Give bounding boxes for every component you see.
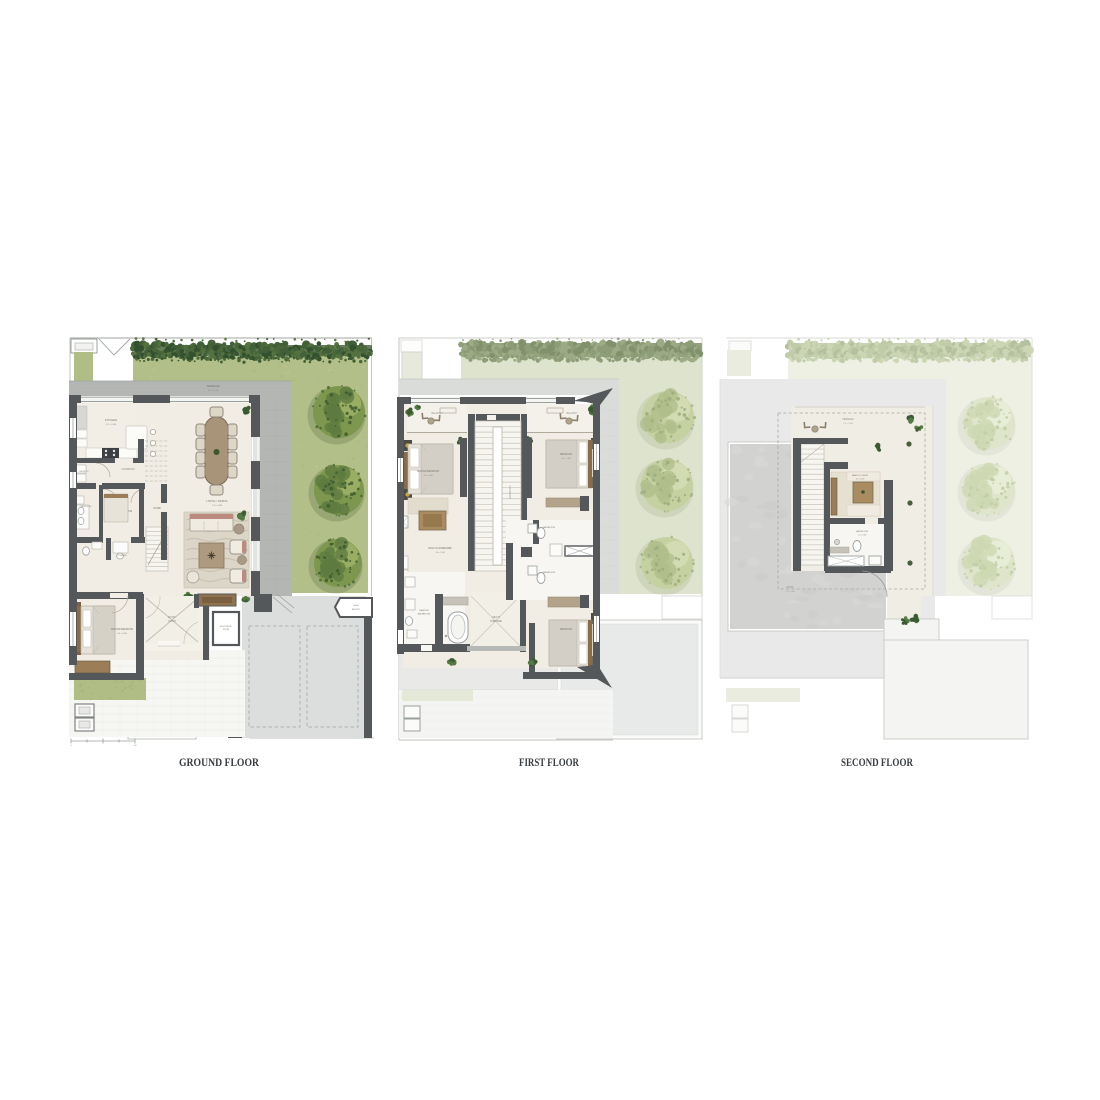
svg-text:MULTI: MULTI — [493, 616, 500, 619]
svg-text:7.9 x 4.6M: 7.9 x 4.6M — [212, 505, 222, 507]
svg-text:4.2 x 3.0M: 4.2 x 3.0M — [106, 424, 116, 426]
svg-text:KITCHEN: KITCHEN — [105, 418, 117, 422]
svg-text:4.6 x 4.0M: 4.6 x 4.0M — [423, 475, 433, 477]
svg-text:7.3 x 6.4M: 7.3 x 6.4M — [785, 591, 795, 593]
svg-text:6.4 x 2.1M: 6.4 x 2.1M — [208, 390, 218, 392]
svg-text:ENTRY: ENTRY — [168, 617, 176, 619]
svg-text:BUGGY: BUGGY — [352, 609, 360, 611]
svg-text:4.6 x 3.6M: 4.6 x 3.6M — [117, 633, 127, 635]
svg-text:3.4 x 3.0M: 3.4 x 3.0M — [856, 479, 865, 481]
svg-text:ROOM: ROOM — [223, 629, 229, 631]
svg-text:5M: 5M — [134, 745, 137, 747]
svg-text:PURPOSE: PURPOSE — [490, 620, 502, 623]
svg-text:BATHROOM: BATHROOM — [856, 530, 868, 533]
svg-text:BALCONY: BALCONY — [567, 412, 578, 415]
svg-text:BEDROOM: BEDROOM — [560, 629, 572, 631]
svg-text:BALCONY: BALCONY — [432, 412, 443, 415]
svg-text:POWDER: POWDER — [117, 555, 127, 557]
svg-text:3.4 x 1.9M: 3.4 x 1.9M — [435, 552, 445, 554]
svg-text:6.1 x 2.0M: 6.1 x 2.0M — [843, 423, 853, 425]
svg-text:SECOND FLOOR: SECOND FLOOR — [841, 757, 914, 769]
svg-text:MASTER BEDROOM: MASTER BEDROOM — [417, 470, 439, 473]
svg-text:FIRST FLOOR: FIRST FLOOR — [519, 757, 580, 769]
svg-text:BATHROOM: BATHROOM — [543, 571, 555, 574]
svg-text:ELECTRICAL: ELECTRICAL — [220, 625, 232, 628]
svg-text:CORRIDOR: CORRIDOR — [121, 468, 134, 471]
svg-text:WALK IN WARDROBE: WALK IN WARDROBE — [428, 547, 452, 550]
svg-text:TERRACE: TERRACE — [842, 418, 854, 421]
svg-text:1.9 x 2.6M: 1.9 x 2.6M — [858, 535, 867, 537]
svg-text:BATHROOM: BATHROOM — [418, 613, 431, 616]
svg-text:TERRACE: TERRACE — [206, 384, 219, 388]
svg-text:STORE: STORE — [153, 508, 161, 510]
svg-text:FAMILY LOUNGE: FAMILY LOUNGE — [852, 474, 869, 477]
svg-text:COURT: COURT — [168, 621, 177, 623]
svg-text:BATHROOM: BATHROOM — [543, 526, 555, 529]
svg-text:GROUND FLOOR: GROUND FLOOR — [179, 757, 260, 769]
svg-text:BEDROOM: BEDROOM — [560, 454, 572, 456]
svg-text:GOLF: GOLF — [353, 605, 360, 607]
svg-text:LIVING / DINING: LIVING / DINING — [206, 499, 227, 503]
svg-text:MASTER: MASTER — [419, 609, 429, 612]
svg-text:WARDROBE: WARDROBE — [80, 505, 92, 508]
svg-text:LAUNDRY: LAUNDRY — [79, 470, 89, 473]
svg-text:MASTER BEDROOM: MASTER BEDROOM — [111, 628, 133, 631]
svg-text:CORRIDOR: CORRIDOR — [508, 485, 511, 498]
svg-text:ROOF: ROOF — [787, 586, 794, 589]
svg-text:3.6 x 3.3M: 3.6 x 3.3M — [561, 458, 571, 460]
